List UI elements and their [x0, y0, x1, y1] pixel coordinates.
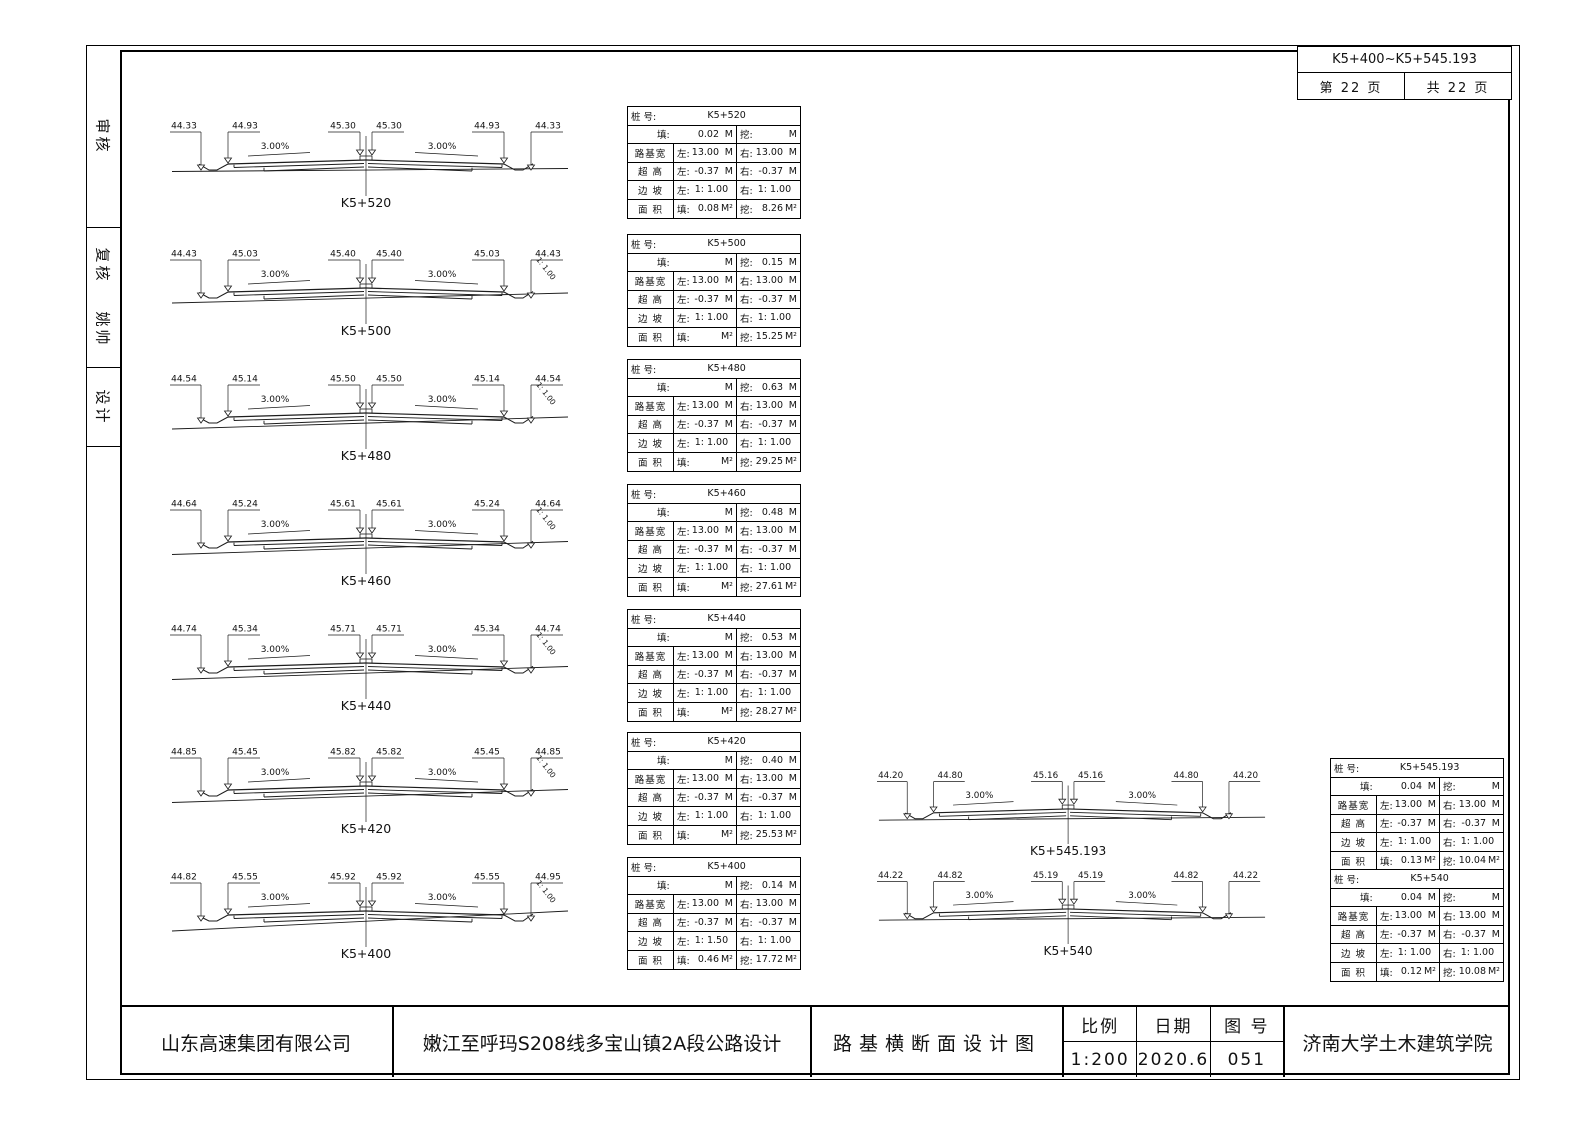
table-cell: 左:1: 1.00: [674, 807, 737, 826]
table-text: 填:: [677, 455, 690, 469]
table-cell: 左:-0.37M: [674, 291, 737, 310]
table-cell: 左:13.00M: [674, 895, 737, 914]
table-text: M: [1422, 929, 1436, 940]
table-text: M: [719, 792, 733, 803]
width-right: 13.00: [1456, 799, 1486, 810]
table-text: M: [719, 294, 733, 305]
slope-left: 1: 1.00: [690, 687, 733, 698]
table-text: M: [783, 166, 797, 177]
table-cell: 填:M²: [674, 328, 737, 347]
drawing-line: [264, 918, 364, 922]
station-key: 桩 号:: [631, 237, 656, 251]
elevation-label: 45.92: [330, 873, 356, 883]
drawing-line: [234, 164, 364, 168]
table-text: M: [719, 898, 733, 909]
table-text: 填:: [677, 828, 690, 842]
elevation-label: 44.82: [938, 871, 963, 881]
station-value: K5+460: [656, 488, 797, 499]
station-value: K5+420: [656, 736, 797, 747]
drawing-line: [366, 160, 504, 164]
table-text: 填:: [1380, 965, 1393, 979]
elevation-label: 45.45: [232, 748, 258, 758]
table-cell: 右:13.00M: [737, 272, 800, 291]
area-label: 面 积: [638, 828, 663, 842]
elevation-label: 44.85: [171, 748, 197, 758]
table-text: 填:: [677, 705, 690, 719]
elevation-marker-icon: [528, 418, 535, 423]
elevation-marker-icon: [369, 403, 376, 408]
table-text: 右:: [1443, 909, 1456, 923]
width-right: 13.00: [753, 650, 783, 661]
table-cell: 边 坡: [1331, 833, 1377, 852]
cross-section-K5+520: 44.3344.9345.3045.3044.9344.333.00%3.00%…: [170, 106, 570, 210]
table-cell: 右:13.00M: [737, 770, 800, 789]
table-text: 挖:: [740, 580, 753, 594]
width-left: 13.00: [690, 773, 719, 784]
table-text: M: [783, 792, 797, 803]
drawing-sheet: 审核 复核 姚帅 设计 K5+400~K5+545.193 第 22 页 共 2…: [0, 0, 1587, 1122]
elevation-marker-icon: [501, 784, 508, 789]
elevation-label: 45.16: [1078, 771, 1104, 781]
slope-label-right: 3.00%: [428, 270, 457, 280]
table-text: M: [783, 382, 797, 393]
elevation-label: 45.03: [232, 250, 258, 260]
table-cell: 左:-0.37M: [674, 416, 737, 435]
section-table-K5+480: 桩 号:K5+480填:M挖:0.63M路基宽左:13.00M右:13.00M超…: [627, 359, 801, 472]
fill-cell: 填:M: [628, 629, 737, 648]
table-cell: 右:-0.37M: [737, 163, 800, 182]
table-text: 右:: [740, 809, 753, 823]
station-key: 桩 号:: [1334, 872, 1359, 886]
cut-key: 挖:: [1443, 779, 1456, 793]
width-right: 13.00: [753, 275, 783, 286]
table-text: 左:: [677, 897, 690, 911]
superelev-right: -0.37: [753, 669, 783, 680]
drawing-line: [366, 911, 504, 915]
superelev-left: -0.37: [690, 669, 719, 680]
table-cell: 挖:10.04M²: [1440, 852, 1503, 871]
drawing-line: [172, 169, 568, 172]
table-text: M: [1422, 818, 1436, 829]
cross-section-K5+460: 44.6445.2445.6145.6145.2444.643.00%3.00%…: [170, 484, 570, 588]
table-text: M: [1486, 781, 1500, 792]
table-cell: 挖:25.53M²: [737, 826, 800, 845]
drawing-line: [366, 413, 504, 417]
elevation-label: 44.54: [171, 375, 197, 385]
superelev-left: -0.37: [690, 544, 719, 555]
table-cell: 右:-0.37M: [737, 789, 800, 808]
table-text: M: [783, 880, 797, 891]
table-text: 右:: [740, 274, 753, 288]
table-text: M²: [719, 581, 733, 592]
cross-section-K5+500: 44.4345.0345.4045.4045.0344.433.00%3.00%…: [170, 234, 570, 338]
elevation-marker-icon: [357, 653, 364, 658]
table-text: M: [783, 544, 797, 555]
station-key: 桩 号:: [631, 109, 656, 123]
cut-cell: 挖:0.63M: [737, 379, 800, 398]
elevation-label: 45.61: [376, 500, 402, 510]
table-text: M²: [783, 331, 797, 342]
slope-left: 1: 1.00: [690, 437, 733, 448]
table-text: 右:: [740, 790, 753, 804]
elevation-label: 45.82: [376, 748, 402, 758]
table-cell: 面 积: [1331, 963, 1377, 982]
elevation-label: 45.14: [474, 375, 500, 385]
table-text: 左:: [677, 146, 690, 160]
cut-cell: 挖:0.53M: [737, 629, 800, 648]
elevation-label: 45.92: [376, 873, 402, 883]
slope-left: 1: 1.00: [690, 312, 733, 323]
figure-no-label: 图 号: [1210, 1007, 1283, 1041]
table-text: 右:: [1443, 816, 1456, 830]
elevation-marker-icon: [528, 293, 535, 298]
elevation-label: 45.82: [330, 748, 356, 758]
drawing-line: [234, 790, 364, 794]
elevation-marker-icon: [225, 411, 232, 416]
table-text: M: [719, 382, 733, 393]
cross-section-svg: 44.2244.8245.1945.1944.8244.223.00%3.00%…: [877, 855, 1267, 959]
table-cell: 边 坡: [628, 181, 674, 200]
slope-label-left: 3.00%: [261, 768, 290, 778]
table-text: 填:: [677, 202, 690, 216]
area-label: 面 积: [638, 330, 663, 344]
table-text: M: [719, 507, 733, 518]
table-cell: 路基宽: [628, 647, 674, 666]
station-label: K5+480: [341, 448, 392, 463]
station-label: K5+520: [341, 195, 392, 210]
drawing-line: [415, 904, 478, 908]
table-cell: 挖:27.61M²: [737, 578, 800, 597]
fill-key: 填:: [657, 630, 670, 644]
table-text: 左:: [677, 915, 690, 929]
table-cell: 右:1: 1.00: [737, 559, 800, 578]
elevation-marker-icon: [501, 536, 508, 541]
table-cell: 面 积: [1331, 852, 1377, 871]
signature-column: 审核 复核 姚帅 设计: [86, 46, 120, 447]
superelev-label: 超 高: [638, 164, 663, 178]
width-label: 路基宽: [635, 649, 667, 663]
cut-value: 0.40: [753, 755, 783, 766]
slope-label-right: 3.00%: [1128, 791, 1156, 801]
table-text: 左:: [677, 292, 690, 306]
table-text: 右:: [740, 686, 753, 700]
table-cell: 右:1: 1.00: [737, 181, 800, 200]
elevation-label: 44.33: [535, 122, 561, 132]
station-label: K5+400: [341, 946, 392, 961]
table-text: M²: [719, 203, 733, 214]
elevation-label: 44.93: [232, 122, 258, 132]
drawing-line: [366, 538, 504, 542]
elevation-marker-icon: [357, 776, 364, 781]
elevation-marker-icon: [904, 814, 911, 819]
cut-cell: 挖:0.14M: [737, 877, 800, 896]
table-text: 右:: [740, 649, 753, 663]
station-key: 桩 号:: [631, 362, 656, 376]
width-label: 路基宽: [635, 146, 667, 160]
width-right: 13.00: [753, 525, 783, 536]
meta-grid: 比例 日期 图 号 1:200 2020.6 051: [1062, 1007, 1283, 1077]
cross-section-svg: 44.8245.5545.9245.9245.5544.953.00%3.00%…: [170, 857, 570, 961]
table-text: M: [719, 917, 733, 928]
slope-label-right: 3.00%: [428, 893, 457, 903]
superelev-left: -0.37: [690, 792, 719, 803]
fill-cell: 填:M: [628, 379, 737, 398]
table-text: M²: [719, 829, 733, 840]
elevation-marker-icon: [225, 909, 232, 914]
elevation-label: 44.82: [171, 873, 197, 883]
elevation-marker-icon: [930, 807, 937, 812]
table-cell: 左:13.00M: [674, 770, 737, 789]
elevation-marker-icon: [1226, 914, 1233, 919]
table-text: 左:: [677, 809, 690, 823]
width-right: 13.00: [753, 147, 783, 158]
drawing-line: [172, 911, 568, 931]
superelev-left: -0.37: [690, 166, 719, 177]
table-text: 左:: [677, 686, 690, 700]
drawing-line: [366, 786, 504, 790]
table-text: 挖:: [740, 705, 753, 719]
drawing-line: [228, 160, 366, 164]
elevation-label: 45.19: [1078, 871, 1103, 881]
elevation-marker-icon: [225, 286, 232, 291]
table-text: 左:: [677, 524, 690, 538]
superelev-left: -0.37: [690, 917, 719, 928]
slope-label-left: 3.00%: [261, 270, 290, 280]
elevation-marker-icon: [369, 901, 376, 906]
slope-right: 1: 1.00: [753, 810, 797, 821]
station-label: K5+500: [341, 323, 392, 338]
drawing-line: [415, 656, 478, 660]
width-right: 13.00: [753, 898, 783, 909]
slope-label-left: 3.00%: [261, 395, 290, 405]
table-cell: 超 高: [628, 666, 674, 685]
area-cut: 17.72: [753, 954, 783, 965]
station-label: K5+460: [341, 573, 392, 588]
drawing-line: [172, 542, 568, 555]
table-text: 左:: [677, 417, 690, 431]
cross-section-K5+400: 44.8245.5545.9245.9245.5544.953.00%3.00%…: [170, 857, 570, 961]
area-label: 面 积: [638, 953, 663, 967]
station-row: 桩 号:K5+420: [628, 733, 800, 752]
cut-key: 挖:: [740, 255, 753, 269]
station-value: K5+440: [656, 613, 797, 624]
slope-label: 边 坡: [638, 183, 663, 197]
cross-section-K5+440: 44.7445.3445.7145.7145.3444.743.00%3.00%…: [170, 609, 570, 713]
drawing-line: [368, 417, 502, 421]
table-cell: 超 高: [628, 541, 674, 560]
table-cell: 左:-0.37M: [674, 914, 737, 933]
institute-name: 济南大学土木建筑学院: [1302, 1029, 1492, 1056]
table-cell: 左:-0.37M: [674, 789, 737, 808]
table-text: M: [1486, 799, 1500, 810]
cross-section-svg: 44.6445.2445.6145.6145.2444.643.00%3.00%…: [170, 484, 570, 588]
drawing-line: [415, 153, 478, 157]
drawing-line: [248, 281, 310, 285]
width-left: 13.00: [690, 525, 719, 536]
table-text: M: [783, 898, 797, 909]
elevation-label: 45.71: [330, 625, 356, 635]
table-text: 左:: [677, 274, 690, 288]
table-cell: 左:13.00M: [674, 397, 737, 416]
width-right: 13.00: [753, 773, 783, 784]
table-text: 左:: [677, 311, 690, 325]
table-text: 左:: [1380, 816, 1393, 830]
table-cell: 超 高: [628, 291, 674, 310]
table-cell: 填:M²: [674, 703, 737, 722]
elevation-label: 44.22: [1233, 871, 1258, 881]
table-cell: 挖:10.08M²: [1440, 963, 1503, 982]
elevation-label: 44.22: [878, 871, 903, 881]
table-text: 右:: [1443, 946, 1456, 960]
elevation-label: 45.24: [474, 500, 500, 510]
elevation-label: 45.50: [376, 375, 402, 385]
section-table-K5+540: 桩 号:K5+540填:0.04M挖:M路基宽左:13.00M右:13.00M超…: [1330, 869, 1504, 982]
table-text: M: [719, 275, 733, 286]
table-cell: 右:-0.37M: [737, 291, 800, 310]
table-cell: 填:0.08M²: [674, 200, 737, 219]
area-cut: 8.26: [753, 203, 783, 214]
table-text: M: [783, 129, 797, 140]
slope-label: 边 坡: [638, 311, 663, 325]
drawing-line: [228, 413, 366, 417]
drawing-line: [172, 667, 568, 680]
cross-section-K5+540: 44.2244.8245.1945.1944.8244.223.00%3.00%…: [877, 855, 1267, 959]
drawing-line: [248, 406, 310, 410]
table-cell: 右:13.00M: [737, 647, 800, 666]
table-text: M²: [1422, 966, 1436, 977]
slope-label: 边 坡: [1341, 946, 1366, 960]
cut-cell: 挖:M: [737, 126, 800, 145]
table-text: M: [719, 880, 733, 891]
table-cell: 左:13.00M: [674, 272, 737, 291]
area-cut: 28.27: [753, 706, 783, 717]
slope-label: 边 坡: [638, 934, 663, 948]
table-text: 左:: [677, 436, 690, 450]
table-text: 右:: [740, 667, 753, 681]
table-cell: 右:1: 1.00: [737, 434, 800, 453]
table-text: 右:: [1443, 798, 1456, 812]
drawing-title-cell: 路基横断面设计图: [810, 1007, 1062, 1077]
slope-right: 1: 1.00: [753, 437, 797, 448]
superelev-label: 超 高: [638, 790, 663, 804]
table-cell: 左:13.00M: [674, 144, 737, 163]
station-key: 桩 号:: [631, 735, 656, 749]
slope-left: 1: 1.00: [1393, 947, 1436, 958]
elevation-marker-icon: [501, 909, 508, 914]
table-text: 挖:: [740, 953, 753, 967]
area-cut: 25.53: [753, 829, 783, 840]
drawing-line: [366, 288, 504, 292]
slope-label: 边 坡: [638, 686, 663, 700]
station-row: 桩 号:K5+540: [1331, 870, 1503, 889]
table-text: M: [783, 917, 797, 928]
cut-cell: 挖:M: [1440, 889, 1503, 908]
drawing-line: [228, 911, 366, 915]
elevation-label: 44.82: [1174, 871, 1199, 881]
area-cut: 29.25: [753, 456, 783, 467]
section-table-K5+440: 桩 号:K5+440填:M挖:0.53M路基宽左:13.00M右:13.00M超…: [627, 609, 801, 722]
cut-value: 0.53: [753, 632, 783, 643]
table-text: M²: [719, 954, 733, 965]
elevation-marker-icon: [357, 901, 364, 906]
elevation-label: 45.03: [474, 250, 500, 260]
fill-cell: 填:M: [628, 504, 737, 523]
elevation-label: 45.30: [376, 122, 402, 132]
superelev-right: -0.37: [1456, 818, 1486, 829]
table-cell: 面 积: [628, 453, 674, 472]
recheck-cell: 复核 姚帅: [86, 228, 120, 368]
table-text: 右:: [740, 436, 753, 450]
drawing-line: [934, 909, 1069, 913]
table-cell: 面 积: [628, 200, 674, 219]
area-fill: 0.12: [1393, 966, 1422, 977]
superelev-left: -0.37: [1393, 929, 1422, 940]
table-text: 左:: [1380, 927, 1393, 941]
cross-section-K5+420: 44.8545.4545.8245.8245.4544.853.00%3.00%…: [170, 732, 570, 836]
elevation-marker-icon: [357, 528, 364, 533]
table-text: M: [783, 755, 797, 766]
table-text: M: [1422, 910, 1436, 921]
elevation-label: 45.24: [232, 500, 258, 510]
table-cell: 右:-0.37M: [737, 666, 800, 685]
width-label: 路基宽: [635, 399, 667, 413]
elevation-marker-icon: [930, 907, 937, 912]
drawing-line: [248, 904, 310, 908]
table-text: 右:: [740, 915, 753, 929]
elevation-marker-icon: [369, 653, 376, 658]
slope-label-right: 3.00%: [428, 395, 457, 405]
table-text: M: [783, 147, 797, 158]
superelev-right: -0.37: [753, 544, 783, 555]
station-label: K5+420: [341, 821, 392, 836]
section-table-K5+460: 桩 号:K5+460填:M挖:0.48M路基宽左:13.00M右:13.00M超…: [627, 484, 801, 597]
elevation-marker-icon: [1059, 799, 1066, 804]
cross-section-K5+545.193: 44.2044.8045.1645.1644.8044.203.00%3.00%…: [877, 755, 1267, 859]
drawing-line: [415, 406, 478, 410]
area-label: 面 积: [638, 455, 663, 469]
fill-cell: 填:M: [628, 752, 737, 771]
drawing-line: [368, 292, 502, 296]
project-cell: 嫩江至呼玛S208线多宝山镇2A段公路设计: [392, 1007, 810, 1077]
drawing-line: [172, 790, 568, 803]
table-text: M²: [1486, 966, 1500, 977]
slope-left: 1: 1.00: [690, 184, 733, 195]
table-text: 右:: [740, 164, 753, 178]
width-label: 路基宽: [1338, 909, 1370, 923]
cross-section-svg: 44.4345.0345.4045.4045.0344.433.00%3.00%…: [170, 234, 570, 338]
table-cell: 右:13.00M: [737, 397, 800, 416]
table-text: M: [1422, 781, 1436, 792]
table-text: 右:: [740, 542, 753, 556]
table-cell: 左:13.00M: [674, 522, 737, 541]
table-text: 右:: [740, 897, 753, 911]
elevation-label: 44.43: [171, 250, 197, 260]
drawing-line: [1116, 902, 1177, 905]
width-label: 路基宽: [635, 897, 667, 911]
station-key: 桩 号:: [631, 487, 656, 501]
superelev-right: -0.37: [753, 917, 783, 928]
table-cell: 挖:29.25M²: [737, 453, 800, 472]
superelev-label: 超 高: [1341, 927, 1366, 941]
elevation-marker-icon: [501, 661, 508, 666]
station-key: 桩 号:: [631, 612, 656, 626]
fill-cell: 填:0.04M: [1331, 778, 1440, 797]
table-text: M: [783, 650, 797, 661]
table-text: 挖:: [1443, 965, 1456, 979]
elevation-marker-icon: [528, 543, 535, 548]
cut-cell: 挖:0.15M: [737, 254, 800, 273]
elevation-label: 44.93: [474, 122, 500, 132]
